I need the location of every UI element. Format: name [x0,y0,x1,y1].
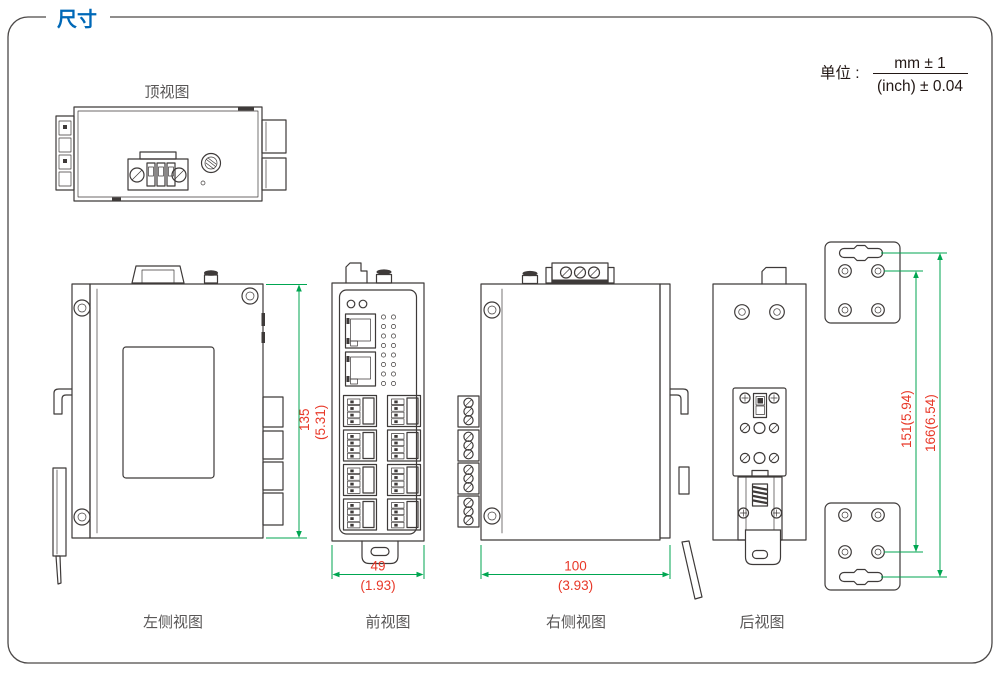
din-clip-latch [738,477,782,565]
bracket-hole-dim-text: 151(5.94) [899,390,914,448]
din-top-tab [346,263,367,283]
mount-plate-edge [72,284,90,538]
dimension-diagram: 尺寸 单位 : mm ± 1 (inch) ± 0.04 顶视图 [0,0,1000,677]
left-side-view: 左侧视图 [53,266,328,631]
latch [746,530,781,565]
fiber-port [344,465,377,496]
fiber-port-tab [263,397,283,525]
left-view-body [90,284,263,538]
status-led [347,300,355,308]
page-title: 尺寸 [57,8,97,31]
fiber-port [388,465,421,496]
din-rail-clip [53,389,72,584]
unit-label: 单位 : [820,64,860,82]
screw-hole [872,546,885,559]
depth-dim-mm: 100 [564,559,587,574]
fiber-port [388,499,421,530]
screw-hole [839,304,852,317]
height-dim-inch: (5.31) [313,405,328,440]
width-dim-mm: 49 [370,559,385,574]
top-view-label: 顶视图 [144,84,189,101]
screw-hole [839,546,852,559]
terminal-stack [458,396,479,427]
ground-screw-icon [377,269,392,283]
screw-hole [735,305,750,320]
bracket-slot-dim-text: 166(6.54) [923,394,938,452]
front-view: 前视图 [332,263,424,631]
screw-hole [839,265,852,278]
fiber-port [388,396,421,427]
screw-hole [839,509,852,522]
screw-hole [484,508,500,524]
power-terminal-block [546,263,614,283]
depth-dim-inch: (3.93) [558,578,593,593]
keyhole-slot [840,570,883,585]
ground-screw-icon [523,271,538,284]
top-terminal-side [132,266,218,283]
device-label-area [123,347,214,478]
screw-hole [74,300,90,316]
top-view: 顶视图 [56,84,286,201]
page-frame [8,17,992,663]
dimension-drawing-page: 尺寸 单位 : mm ± 1 (inch) ± 0.04 顶视图 [0,0,1000,677]
right-view-body [481,284,660,540]
screw-hole [872,265,885,278]
unit-annotation: 单位 : mm ± 1 (inch) ± 0.04 [820,55,968,95]
fiber-port [344,396,377,427]
rj45-port [346,352,376,386]
depth-dimension: 100 (3.93) [481,545,670,593]
led-matrix [381,315,395,386]
mount-plate-edge [660,284,670,538]
unit-mm: mm ± 1 [894,55,946,72]
edge-mark [262,313,266,326]
rear-view-label: 后视图 [739,614,784,631]
height-dimension: 135 (5.31) [266,285,328,539]
terminal-stack [458,430,479,461]
bracket-hole-dimension: 151(5.94) [884,271,923,552]
wall-bracket-top [825,242,900,323]
top-view-body [74,107,262,201]
terminal-stack [458,463,479,494]
din-mount-plate [733,388,786,477]
screw-hole [242,288,258,304]
width-dimension: 49 (1.93) [332,545,424,593]
screw-hole [872,304,885,317]
fiber-port-tab [262,120,286,190]
rear-view: 后视图 [713,268,806,632]
front-view-label: 前视图 [365,614,410,631]
left-view-label: 左侧视图 [143,614,203,631]
right-view-label: 右侧视图 [546,614,606,631]
bracket-slot-dimension: 166(6.54) [881,253,947,577]
fiber-port [388,430,421,461]
height-dim-mm: 135 [297,408,312,431]
screw-hole [872,509,885,522]
edge-mark [238,107,254,111]
screw-hole [484,302,500,318]
power-terminal-block [128,152,188,190]
width-dim-inch: (1.93) [360,578,395,593]
fiber-port [344,499,377,530]
unit-inch: (inch) ± 0.04 [877,78,963,95]
status-led [359,300,367,308]
din-rail-clip [670,389,702,599]
terminal-stack [458,496,479,527]
top-view-body-inner [78,111,258,197]
edge-mark [262,332,266,343]
right-side-view: 右侧视图 [458,263,702,631]
edge-mark [112,198,121,201]
fiber-port [344,430,377,461]
wall-mount-brackets: 151(5.94) 166(6.54) [825,242,947,590]
screw-hole [770,305,785,320]
ground-screw-icon [201,154,221,186]
spring [753,484,768,506]
rj45-port [346,314,376,348]
keyhole-slot [840,246,883,261]
side-connector [56,116,74,190]
din-top-tab [762,268,786,285]
screw-hole [74,509,90,525]
